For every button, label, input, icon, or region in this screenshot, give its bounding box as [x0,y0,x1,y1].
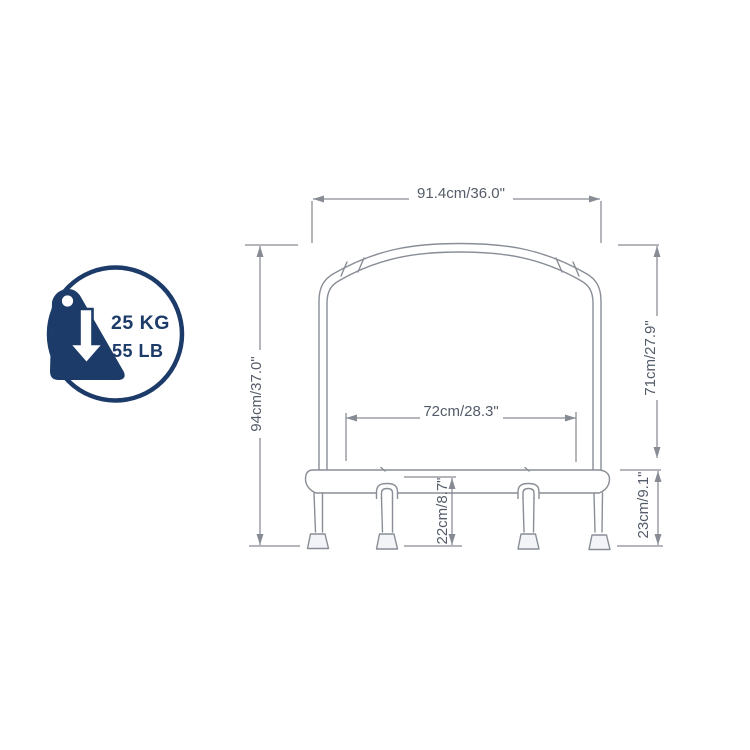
dimension-overall-height: 94cm/37.0" [245,245,300,546]
dim-arch-height-label: 71cm/27.9" [642,320,659,395]
diagram-canvas: 25 KG 55 LB [0,0,750,750]
leg-3 [518,484,539,550]
dim-overall-height-label: 94cm/37.0" [248,356,265,431]
leg-4 [589,493,610,550]
dim-top-width-label: 91.4cm/36.0" [417,185,505,202]
arch-outer-line [319,244,601,471]
dim-base-height-label: 23cm/9.1" [635,471,652,538]
dimension-top-width: 91.4cm/36.0" [312,185,601,243]
leg-1 [308,493,329,549]
weight-capacity-badge: 25 KG 55 LB [49,268,182,401]
arch-sleeve-joints [341,258,579,276]
leg-2 [377,484,398,550]
dimension-arch-height: 71cm/27.9" [618,245,661,458]
base-rail [306,470,610,493]
dim-inner-width-label: 72cm/28.3" [423,403,498,420]
dimension-inner-width: 72cm/28.3" [346,403,576,462]
weight-capacity-lb: 55 LB [112,341,164,361]
dimension-diagram: 25 KG 55 LB [0,0,750,750]
dim-leg-height-label: 22cm/8.7" [434,477,451,544]
weight-capacity-kg: 25 KG [111,312,170,334]
falling-weight-arrow-icon [50,289,125,380]
dimension-base-height: 23cm/9.1" [617,470,663,546]
arch-inner-line [327,252,593,470]
product-frame [306,244,611,550]
